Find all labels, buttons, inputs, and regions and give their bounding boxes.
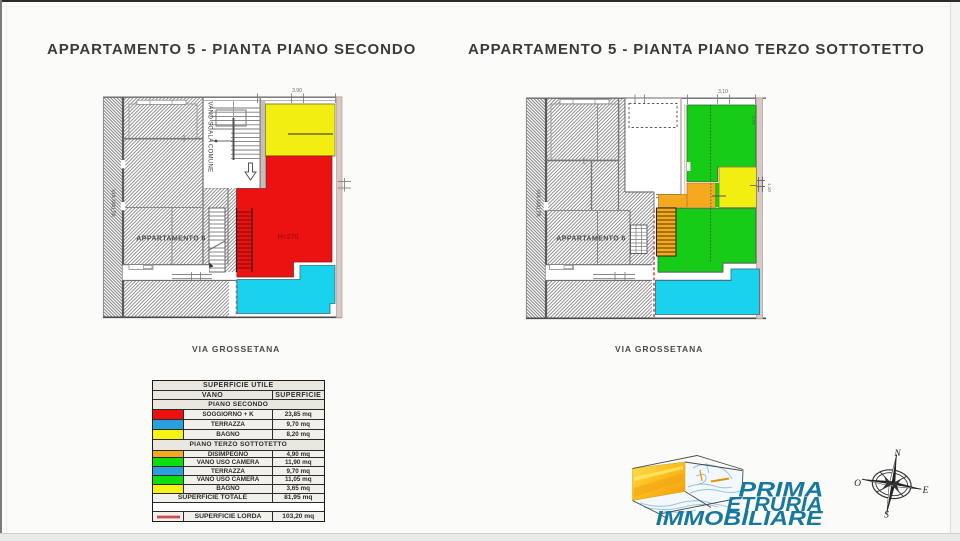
svg-text:N: N <box>893 449 901 459</box>
svg-text:VANO SCALA COMUNE: VANO SCALA COMUNE <box>207 101 213 172</box>
svg-text:APPARTAMENTO 6: APPARTAMENTO 6 <box>136 236 205 243</box>
svg-text:VIA MALTA: VIA MALTA <box>535 189 541 217</box>
svg-text:O: O <box>854 479 861 489</box>
svg-text:IMMOBILIARE: IMMOBILIARE <box>656 506 824 529</box>
svg-text:3.10: 3.10 <box>718 89 728 95</box>
svg-text:1.10: 1.10 <box>767 183 772 192</box>
svg-text:3.90: 3.90 <box>292 88 302 94</box>
svg-text:E: E <box>922 486 929 496</box>
svg-text:2.78: 2.78 <box>751 116 756 125</box>
svg-text:APPARTAMENTO 6: APPARTAMENTO 6 <box>556 236 625 243</box>
svg-text:VIA MALTA: VIA MALTA <box>110 189 116 217</box>
svg-text:S: S <box>884 511 889 521</box>
svg-text:H=270: H=270 <box>278 234 299 241</box>
